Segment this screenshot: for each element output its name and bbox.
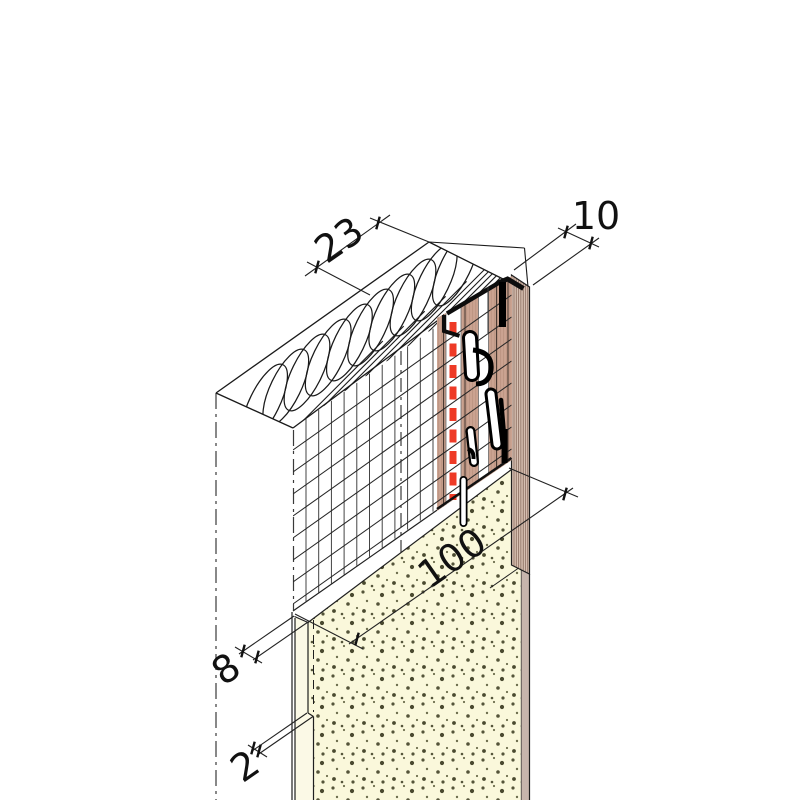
masonry-wall bbox=[292, 458, 530, 800]
band-right-edge bbox=[429, 242, 503, 279]
dim-label-10: 10 bbox=[572, 194, 620, 238]
fixing-slot-small bbox=[468, 431, 475, 462]
masonry-stipple-texture bbox=[309, 462, 522, 800]
dimension-system-thickness: 23 bbox=[305, 208, 429, 295]
wall-profile-isometric-drawing: 23 10 100 8 2 bbox=[0, 0, 800, 800]
band-back-edge bbox=[216, 242, 429, 393]
technical-drawing-page: 23 10 100 8 2 bbox=[0, 0, 800, 800]
back-edge-continuation bbox=[429, 242, 525, 248]
wall-return-strip bbox=[522, 566, 530, 800]
band-left-edge bbox=[216, 393, 293, 428]
dimension-profile-face: 10 bbox=[514, 194, 620, 285]
dim-label-23: 23 bbox=[307, 208, 372, 272]
joint-corner-edge bbox=[525, 248, 529, 287]
